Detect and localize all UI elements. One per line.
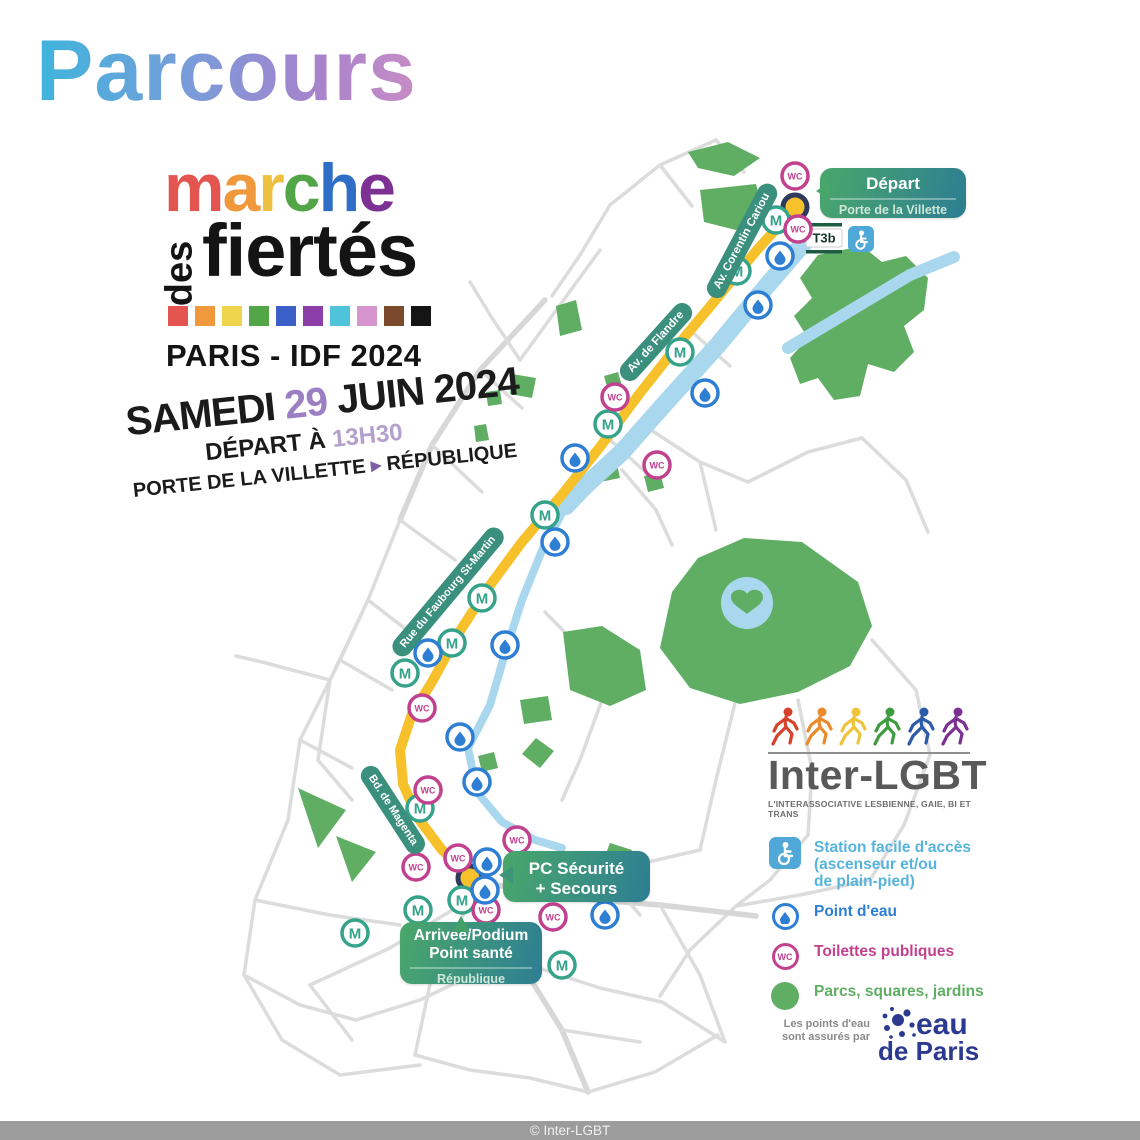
legend: Inter-LGBT L'INTERASSOCIATIVE LESBIENNE,… — [768, 698, 988, 1021]
water-drop-icon — [772, 903, 799, 930]
page-title: Parcours — [36, 22, 417, 121]
runner-blue — [909, 708, 933, 745]
water-point-icon — [492, 632, 518, 658]
svg-text:WC: WC — [608, 393, 623, 403]
runner-orange — [807, 708, 831, 745]
metro-icon: M — [667, 339, 693, 365]
pc-badge-line2: + Secours — [503, 879, 650, 899]
water-point-icon — [464, 769, 490, 795]
water-point-icon — [767, 243, 793, 269]
svg-text:WC: WC — [421, 786, 436, 796]
wc-icon: WC — [644, 452, 670, 478]
color-square — [195, 306, 215, 326]
arrivee-badge-subtitle: République — [400, 972, 542, 986]
parc-des-buttes-chaumont — [660, 538, 872, 704]
wheelchair-icon — [848, 226, 874, 252]
svg-text:M: M — [602, 417, 615, 434]
pc-securite-badge: PC Sécurité + Secours — [503, 851, 650, 902]
wc-icon: WC — [602, 384, 628, 410]
runner-yellow — [841, 708, 865, 745]
legend-label: Station facile d'accès (ascenseur et/ou … — [814, 837, 971, 890]
svg-text:M: M — [446, 636, 459, 653]
depart-badge: Départ Porte de la Villette — [820, 168, 966, 218]
wc-icon: WC — [785, 216, 811, 242]
poster: T3b M M M M M M M M M M M M M WC — [0, 0, 1140, 1140]
svg-text:M: M — [412, 903, 425, 920]
svg-text:WC: WC — [650, 461, 665, 471]
pride-color-squares — [168, 306, 431, 326]
logo-subtitle: PARIS - IDF 2024 — [166, 338, 422, 374]
inter-lgbt-tagline: L'INTERASSOCIATIVE LESBIENNE, GAIE, BI E… — [768, 799, 988, 819]
svg-text:M: M — [399, 666, 412, 683]
metro-icon: M — [595, 411, 621, 437]
svg-text:M: M — [674, 345, 687, 362]
svg-text:WC: WC — [409, 863, 424, 873]
sponsor-note: Les points d'eau sont assurés par — [778, 1008, 870, 1070]
svg-text:M: M — [476, 591, 489, 608]
color-square — [384, 306, 404, 326]
color-square — [276, 306, 296, 326]
wc-icon: WC — [540, 904, 566, 930]
parc-de-la-villette — [790, 246, 928, 400]
svg-text:WC: WC — [791, 225, 806, 235]
inter-lgbt-brand: Inter-LGBT — [768, 754, 988, 797]
wc-icon: WC — [409, 695, 435, 721]
svg-text:WC: WC — [479, 906, 494, 916]
color-square — [411, 306, 431, 326]
metro-icon: M — [469, 585, 495, 611]
svg-text:WC: WC — [451, 854, 466, 864]
water-point-icon — [447, 724, 473, 750]
water-point-icon — [692, 380, 718, 406]
park-icon — [771, 982, 799, 1010]
svg-text:M: M — [349, 926, 362, 943]
water-point-icon — [415, 640, 441, 666]
eau-de-paris-logo: eau de Paris — [876, 1008, 981, 1070]
metro-icon: M — [439, 630, 465, 656]
route-arrow-icon: ▸ — [370, 454, 382, 477]
inter-lgbt-runners-logo — [768, 698, 973, 750]
depart-badge-title: Départ — [820, 174, 966, 194]
runner-green — [875, 708, 899, 745]
start-time: 13H30 — [331, 419, 404, 453]
metro-icon: M — [342, 920, 368, 946]
water-point-icon — [562, 445, 588, 471]
arrivee-badge-line1: Arrivée/Podium — [400, 927, 542, 945]
wheelchair-icon — [769, 837, 801, 869]
legend-label: Toilettes publiques — [814, 941, 954, 960]
legend-items: Station facile d'accès (ascenseur et/ou … — [768, 837, 988, 1010]
metro-icon: M — [532, 502, 558, 528]
metro-icon: M — [405, 897, 431, 923]
svg-text:M: M — [770, 213, 783, 230]
color-square — [168, 306, 188, 326]
svg-text:WC: WC — [546, 913, 561, 923]
svg-text:M: M — [539, 508, 552, 525]
arrivee-badge-line2: Point santé — [400, 945, 542, 963]
pride-logo: marche des fiertés PARIS - IDF 2024 — [160, 160, 460, 380]
color-square — [249, 306, 269, 326]
footer: © Inter-LGBT — [0, 1121, 1140, 1140]
wc-icon: WC — [504, 827, 530, 853]
divider — [410, 967, 532, 969]
svg-text:WC: WC — [510, 836, 525, 846]
arrivee-badge: Arrivée/Podium Point santé République — [400, 922, 542, 984]
color-square — [303, 306, 323, 326]
tram-label-text: T3b — [812, 231, 835, 246]
legend-item-accessible-station: Station facile d'accès (ascenseur et/ou … — [768, 837, 988, 890]
svg-text:M: M — [556, 958, 569, 975]
runner-purple — [943, 708, 967, 745]
footer-credit: © Inter-LGBT — [530, 1123, 610, 1138]
bassin-de-la-villette — [566, 238, 808, 506]
legend-item-toilets: WC Toilettes publiques — [768, 941, 988, 970]
wc-icon: WC — [772, 943, 799, 970]
wc-icon: WC — [782, 163, 808, 189]
color-square — [330, 306, 350, 326]
legend-item-water-point: Point d'eau — [768, 901, 988, 930]
water-point-icon — [542, 529, 568, 555]
color-square — [357, 306, 377, 326]
metro-icon: M — [392, 660, 418, 686]
metro-icon: M — [549, 952, 575, 978]
wc-icon: WC — [445, 845, 471, 871]
logo-word-fiertes: fiertés — [202, 214, 417, 288]
depart-badge-subtitle: Porte de la Villette — [820, 203, 966, 217]
water-point-icon — [592, 902, 618, 928]
logo-word-des: des — [159, 232, 202, 316]
water-point-icon — [745, 292, 771, 318]
sponsor-name-line2: de Paris — [878, 1036, 979, 1067]
legend-label: Parcs, squares, jardins — [814, 981, 984, 1000]
runner-red — [773, 708, 797, 745]
svg-text:WC: WC — [415, 704, 430, 714]
event-day-number: 29 — [282, 379, 329, 427]
pc-badge-line1: PC Sécurité — [503, 859, 650, 879]
sponsor: Les points d'eau sont assurés par eau de… — [778, 1008, 988, 1070]
divider — [830, 198, 956, 200]
color-square — [222, 306, 242, 326]
legend-label: Point d'eau — [814, 901, 897, 920]
wc-icon: WC — [415, 777, 441, 803]
wc-icon: WC — [403, 854, 429, 880]
svg-text:WC: WC — [788, 172, 803, 182]
